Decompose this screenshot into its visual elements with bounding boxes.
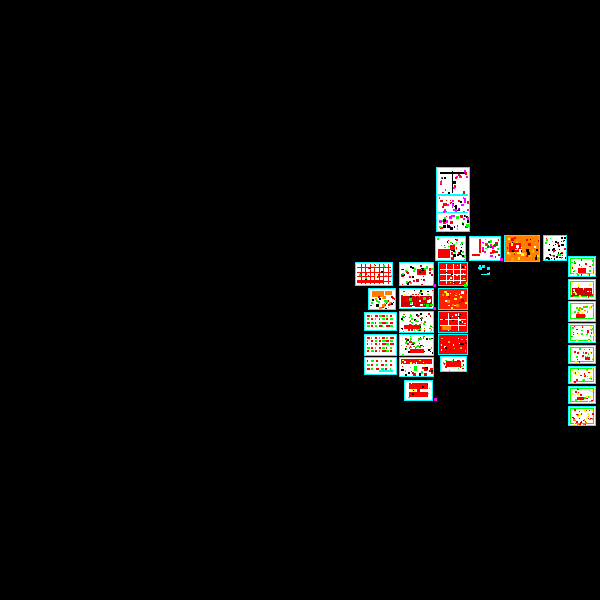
sheet-graphic: [450, 221, 453, 224]
sheet-text-row: [390, 364, 392, 366]
sheet-graphic: [589, 396, 591, 398]
sheet-graphic: [401, 328, 403, 330]
sheet-graphic: [431, 338, 433, 340]
sheet-red-n1[interactable]: [438, 262, 468, 286]
sheet-graphic: [516, 245, 518, 247]
sheet-graphic: [451, 252, 454, 255]
sheet-graphic: [537, 255, 538, 256]
sheet-graphic: [408, 329, 410, 331]
sheet-right-2[interactable]: [568, 279, 596, 300]
marker-dot-5[interactable]: [434, 398, 437, 401]
sheet-graphic: [558, 245, 560, 247]
sheet-graphic: [583, 420, 584, 421]
sheet-graphic: [409, 298, 412, 301]
sheet-graphic: [465, 302, 467, 304]
sheet-graphic: [378, 274, 379, 275]
sheet-graphic: [585, 263, 587, 265]
sheet-graphic: [590, 351, 591, 352]
sheet-graphic: [417, 321, 418, 322]
sheet-graphic: [410, 320, 412, 322]
sheet-text-row: [371, 350, 374, 352]
sheet-graphic: [458, 338, 459, 339]
sheet-graphic: [422, 386, 424, 388]
sheet-graphic: [444, 364, 445, 365]
sheet-graphic: [443, 319, 445, 321]
sheet-graphic: [561, 252, 563, 254]
marker-dot-2[interactable]: [464, 284, 467, 287]
sheet-graphic: [577, 397, 584, 401]
sheet-graphic: [444, 247, 445, 248]
sheet-graphic: [590, 373, 591, 374]
sheet-graphic: [575, 361, 577, 363]
sheet-graphic: [447, 300, 449, 302]
sheet-graphic: [576, 314, 585, 318]
sheet-graphic: [490, 255, 492, 257]
sheet-graphic: [519, 257, 521, 259]
sheet-graphic: [421, 293, 423, 295]
sheet-graphic: [576, 421, 578, 423]
sheet-graphic: [571, 314, 572, 315]
sheet-graphic: [458, 208, 459, 209]
sheet-plan-m1[interactable]: [399, 262, 434, 286]
sheet-graphic: [451, 365, 453, 367]
sheet-text-row: [367, 315, 370, 317]
sheet-graphic: [581, 308, 583, 310]
sheet-graphic: [430, 331, 432, 333]
sheet-site-plan[interactable]: [435, 236, 466, 261]
sheet-graphic: [461, 291, 464, 294]
sheet-graphic: [423, 269, 424, 270]
sheet-graphic: [450, 293, 451, 294]
sheet-graphic: [489, 272, 490, 275]
sheet-graphic: [577, 393, 579, 395]
sheet-graphic: [558, 252, 559, 253]
sheet-graphic: [410, 314, 411, 315]
sheet-graphic: [438, 194, 469, 195]
sheet-graphic: [375, 276, 377, 278]
sheet-graphic: [589, 284, 591, 286]
sheet-graphic: [419, 330, 420, 331]
sheet-graphic: [585, 259, 586, 260]
sheet-graphic: [430, 325, 432, 327]
sheet-graphic: [462, 223, 464, 225]
sheet-notes-1[interactable]: [364, 312, 397, 331]
sheet-detail-cross[interactable]: [404, 380, 433, 401]
sheet-graphic: [405, 374, 407, 376]
sheet-text-row: [386, 347, 387, 349]
sheet-graphic: [432, 352, 434, 354]
sheet-graphic: [588, 409, 589, 410]
sheet-text-row: [371, 347, 373, 349]
sheet-graphic: [592, 418, 593, 419]
sheet-plan-m3[interactable]: [399, 311, 434, 333]
sheet-graphic: [497, 248, 499, 250]
sheet-graphic: [454, 226, 456, 228]
sheet-graphic: [428, 293, 429, 294]
sheet-graphic: [555, 250, 556, 251]
sheet-graphic: [410, 349, 425, 353]
sheet-graphic: [410, 266, 412, 268]
sheet-graphic: [584, 375, 585, 376]
sheet-graphic: [419, 346, 421, 348]
sheet-graphic: [552, 241, 553, 242]
sheet-graphic: [512, 242, 513, 243]
sheet-graphic: [460, 343, 462, 345]
sheet-graphic: [559, 249, 560, 250]
sheet-graphic: [391, 275, 393, 277]
sheet-orange-plan[interactable]: [504, 235, 540, 262]
sheet-graphic: [461, 339, 462, 340]
sheet-graphic: [385, 265, 386, 266]
sheet-graphic: [417, 279, 420, 282]
sheet-graphic: [391, 279, 392, 280]
sheet-graphic: [574, 262, 576, 264]
sheet-right-8[interactable]: [568, 406, 596, 426]
sheet-graphic: [365, 277, 367, 279]
sheet-graphic: [430, 368, 432, 370]
sheet-graphic: [511, 238, 514, 241]
sheet-graphic: [457, 360, 459, 362]
sheet-graphic: [573, 274, 575, 276]
sheet-graphic: [587, 376, 588, 377]
sheet-graphic: [451, 215, 453, 217]
sheet-graphic: [562, 244, 564, 246]
sheet-graphic: [370, 305, 372, 307]
sheet-graphic: [458, 316, 459, 317]
sheet-graphic: [427, 370, 428, 371]
sheet-graphic: [587, 274, 589, 276]
sheet-graphic: [453, 282, 455, 284]
marker-dot-4[interactable]: [500, 258, 503, 261]
sheet-graphic: [553, 255, 555, 257]
sheet-graphic: [584, 381, 585, 382]
sheet-graphic: [585, 274, 587, 276]
sheet-graphic: [592, 328, 594, 330]
sheet-graphic: [482, 242, 484, 244]
sheet-graphic: [592, 260, 594, 262]
sheet-graphic: [443, 219, 446, 222]
sheet-text-row: [375, 350, 378, 352]
sheet-red-n4[interactable]: [438, 334, 468, 355]
sheet-graphic: [550, 238, 551, 239]
sheet-graphic: [521, 247, 523, 249]
sheet-graphic: [413, 363, 414, 364]
sheet-graphic: [404, 325, 421, 329]
sheet-text-row: [367, 325, 370, 327]
sheet-text-row: [381, 364, 384, 366]
sheet-text-row: [379, 340, 382, 342]
sheet-text-row: [371, 322, 374, 324]
sheet-graphic: [422, 345, 423, 346]
cad-model-space-canvas[interactable]: [0, 0, 600, 600]
sheet-notes-3[interactable]: [364, 357, 397, 375]
sheet-graphic: [571, 336, 572, 337]
sheet-graphic: [446, 211, 447, 212]
sheet-graphic: [462, 343, 464, 345]
sheet-graphic: [572, 282, 573, 283]
sheet-graphic: [417, 397, 418, 398]
sheet-graphic: [404, 317, 405, 318]
sheet-graphic: [583, 293, 585, 295]
sheet-schedule-table[interactable]: [355, 262, 393, 286]
sheet-text-row: [375, 315, 378, 317]
sheet-graphic: [579, 307, 581, 309]
sheet-graphic: [431, 347, 433, 349]
sheet-text-row: [371, 318, 374, 320]
sheet-graphic: [590, 335, 591, 336]
sheet-graphic: [453, 215, 456, 218]
sheet-graphic: [589, 266, 591, 268]
sheet-graphic: [408, 372, 410, 374]
sheet-graphic: [453, 181, 455, 183]
sheet-graphic: [578, 268, 586, 273]
sheet-text-row: [375, 322, 377, 324]
sheet-graphic: [463, 273, 464, 274]
sheet-graphic: [453, 187, 455, 189]
sheet-graphic: [462, 321, 463, 322]
sheet-text-row: [381, 360, 382, 362]
sheet-graphic: [575, 353, 576, 354]
sheet-notes-2[interactable]: [364, 334, 397, 356]
sheet-graphic: [591, 294, 593, 296]
sheet-text-row: [375, 347, 377, 349]
sheet-graphic: [572, 267, 574, 269]
sheet-graphic: [419, 300, 421, 302]
sheet-graphic: [415, 294, 417, 296]
sheet-text-row: [386, 343, 388, 345]
sheet-graphic: [574, 423, 575, 424]
sheet-graphic: [412, 306, 415, 309]
sheet-graphic: [580, 394, 582, 396]
sheet-graphic: [421, 371, 424, 374]
sheet-graphic: [589, 261, 590, 262]
sheet-text-row: [382, 325, 383, 327]
sheet-graphic: [581, 297, 583, 299]
sheet-graphic: [407, 339, 409, 341]
sheet-graphic: [424, 330, 425, 331]
sheet-graphic: [443, 362, 445, 364]
sheet-graphic: [440, 181, 442, 183]
sheet-right-1[interactable]: [568, 256, 596, 277]
sheet-graphic: [450, 200, 451, 201]
sheet-checker-detail[interactable]: [543, 235, 567, 261]
sheet-graphic: [427, 300, 430, 303]
sheet-graphic: [365, 273, 367, 275]
sheet-graphic: [448, 305, 450, 307]
cyan-glyph-marker[interactable]: [477, 263, 490, 275]
sheet-graphic: [426, 391, 427, 392]
sheet-graphic: [578, 392, 579, 393]
sheet-graphic: [462, 368, 463, 369]
sheet-tree-plan[interactable]: [469, 236, 501, 261]
sheet-graphic: [426, 316, 427, 317]
sheet-graphic: [445, 203, 447, 205]
sheet-text-row: [379, 347, 382, 349]
sheet-graphic: [576, 356, 578, 358]
sheet-graphic: [556, 256, 558, 258]
marker-dot-1[interactable]: [433, 284, 436, 287]
sheet-graphic: [529, 255, 531, 257]
sheet-graphic: [467, 209, 470, 212]
sheet-graphic: [462, 251, 464, 253]
sheet-graphic: [413, 343, 414, 344]
sheet-graphic: [487, 267, 490, 270]
sheet-graphic: [431, 372, 433, 374]
sheet-graphic: [583, 306, 584, 307]
sheet-graphic: [428, 349, 430, 351]
sheet-graphic: [561, 241, 562, 242]
sheet-right-3[interactable]: [568, 301, 596, 322]
sheet-graphic: [530, 239, 531, 240]
sheet-graphic: [458, 368, 459, 369]
sheet-graphic: [429, 297, 430, 298]
sheet-text-row: [371, 368, 373, 370]
sheet-right-6[interactable]: [568, 366, 596, 384]
sheet-plan-m5[interactable]: [399, 357, 434, 377]
sheet-graphic: [384, 303, 385, 304]
sheet-graphic: [441, 349, 443, 351]
sheet-graphic: [440, 172, 467, 173]
sheet-graphic: [573, 377, 574, 378]
sheet-graphic: [466, 291, 468, 294]
sheet-graphic: [383, 296, 385, 298]
sheet-graphic: [571, 349, 573, 351]
sheet-graphic: [405, 348, 406, 349]
sheet-graphic: [573, 372, 575, 374]
sheet-graphic: [378, 296, 380, 298]
sheet-graphic: [532, 250, 534, 252]
sheet-graphic: [581, 330, 582, 331]
sheet-plan-m4[interactable]: [399, 334, 434, 356]
sheet-graphic: [410, 367, 411, 368]
sheet-graphic: [442, 326, 451, 330]
sheet-graphic: [447, 224, 448, 225]
sheet-graphic: [579, 418, 581, 420]
sheet-graphic: [592, 358, 593, 359]
sheet-red-n5[interactable]: [440, 356, 467, 372]
sheet-text-row: [390, 350, 392, 352]
sheet-graphic: [579, 264, 581, 266]
sheet-text-row: [390, 325, 392, 327]
sheet-text-row: [375, 325, 377, 327]
sheet-graphic: [409, 281, 411, 283]
sheet-graphic: [495, 256, 497, 258]
sheet-graphic: [378, 277, 379, 278]
sheet-graphic: [463, 211, 465, 213]
marker-dot-3[interactable]: [433, 307, 436, 310]
sheet-graphic: [591, 314, 592, 315]
sheet-graphic: [357, 280, 383, 284]
sheet-graphic: [431, 274, 433, 276]
sheet-graphic: [423, 323, 425, 325]
sheet-graphic: [593, 401, 594, 402]
sheet-graphic: [592, 264, 594, 266]
sheet-text-row: [390, 347, 392, 349]
sheet-graphic: [535, 258, 537, 260]
sheet-right-7[interactable]: [568, 386, 596, 404]
sheet-text-row: [375, 343, 377, 345]
sheet-graphic: [401, 295, 403, 297]
sheet-graphic: [464, 259, 466, 261]
sheet-gridline: [440, 280, 466, 281]
sheet-graphic: [589, 308, 590, 309]
sheet-red-n2[interactable]: [438, 288, 468, 310]
sheet-text-row: [379, 315, 382, 317]
sheet-text-row: [371, 360, 373, 362]
sheet-graphic: [581, 333, 583, 335]
sheet-graphic: [582, 378, 584, 380]
sheet-graphic: [472, 254, 480, 256]
sheet-graphic: [458, 200, 460, 202]
sheet-graphic: [450, 317, 451, 318]
sheet-graphic: [405, 270, 407, 272]
sheet-graphic: [528, 243, 531, 246]
sheet-graphic: [590, 389, 591, 390]
sheet-graphic: [429, 388, 430, 389]
sheet-plan-m2[interactable]: [399, 288, 434, 309]
sheet-graphic: [593, 266, 595, 268]
sheet-graphic: [572, 417, 573, 418]
sheet-graphic: [402, 320, 404, 322]
sheet-text-row: [386, 350, 388, 352]
sheet-graphic: [589, 270, 591, 272]
sheet-text-row: [390, 337, 393, 339]
sheet-graphic: [456, 247, 458, 249]
sheet-graphic: [591, 272, 593, 274]
sheet-graphic: [453, 344, 454, 345]
sheet-text-row: [382, 315, 384, 317]
sheet-graphic: [498, 254, 500, 256]
sheet-graphic: [553, 250, 555, 252]
sheet-text-row: [390, 318, 393, 320]
sheet-graphic: [403, 314, 404, 315]
sheet-graphic: [463, 278, 464, 279]
sheet-graphic: [578, 351, 580, 353]
sheet-graphic: [456, 304, 459, 307]
sheet-tall-plan[interactable]: [436, 167, 470, 232]
sheet-graphic: [584, 310, 586, 312]
sheet-graphic: [463, 218, 466, 221]
sheet-right-5[interactable]: [568, 345, 596, 364]
sheet-graphic: [429, 338, 431, 340]
sheet-right-4[interactable]: [568, 323, 596, 343]
sheet-graphic: [463, 192, 465, 194]
sheet-graphic: [493, 245, 496, 248]
sheet-graphic: [572, 393, 574, 395]
sheet-graphic: [495, 251, 497, 253]
sheet-graphic: [589, 414, 591, 416]
sheet-graphic: [590, 330, 591, 331]
sheet-graphic: [415, 296, 416, 297]
sheet-graphic: [589, 349, 590, 350]
sheet-plan-orange-small[interactable]: [368, 288, 396, 310]
sheet-graphic: [426, 304, 428, 306]
sheet-graphic: [359, 274, 361, 276]
sheet-graphic: [401, 269, 402, 270]
sheet-graphic: [440, 184, 442, 186]
sheet-graphic: [578, 369, 579, 370]
sheet-graphic: [467, 217, 470, 220]
sheet-graphic: [455, 295, 457, 297]
sheet-graphic: [456, 323, 457, 324]
sheet-text-row: [367, 350, 370, 352]
sheet-graphic: [459, 283, 460, 284]
sheet-graphic: [457, 228, 458, 229]
sheet-graphic: [416, 297, 417, 298]
sheet-graphic: [580, 375, 581, 376]
sheet-text-row: [379, 318, 380, 320]
sheet-red-n3[interactable]: [438, 311, 468, 333]
